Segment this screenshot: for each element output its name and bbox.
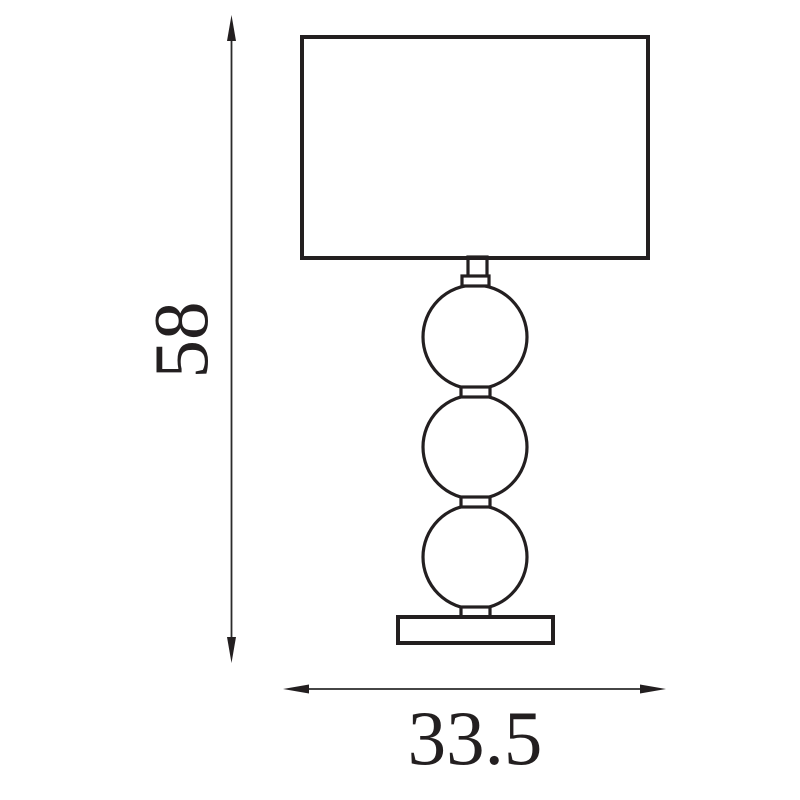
lamp-neck-collar [462, 276, 489, 286]
width-dimension: 33.5 [283, 685, 666, 782]
lamp-base [398, 617, 553, 643]
left-arrowhead-icon [283, 685, 309, 694]
lamp-sphere-bottom [423, 505, 527, 609]
lamp-outline [302, 37, 648, 643]
height-dimension-label: 58 [138, 302, 224, 379]
lamp-sphere-top [423, 285, 527, 389]
down-arrowhead-icon [227, 637, 236, 663]
sphere-connector-top [461, 387, 490, 397]
lamp-shade [302, 37, 648, 258]
lamp-technical-drawing: 58 33.5 [0, 0, 800, 800]
width-dimension-label: 33.5 [408, 695, 543, 781]
height-dimension: 58 [138, 15, 236, 663]
up-arrowhead-icon [227, 15, 236, 41]
drawing-canvas: 58 33.5 [0, 0, 800, 800]
sphere-connector-middle [461, 497, 490, 507]
lamp-sphere-middle [423, 395, 527, 499]
right-arrowhead-icon [640, 685, 666, 694]
